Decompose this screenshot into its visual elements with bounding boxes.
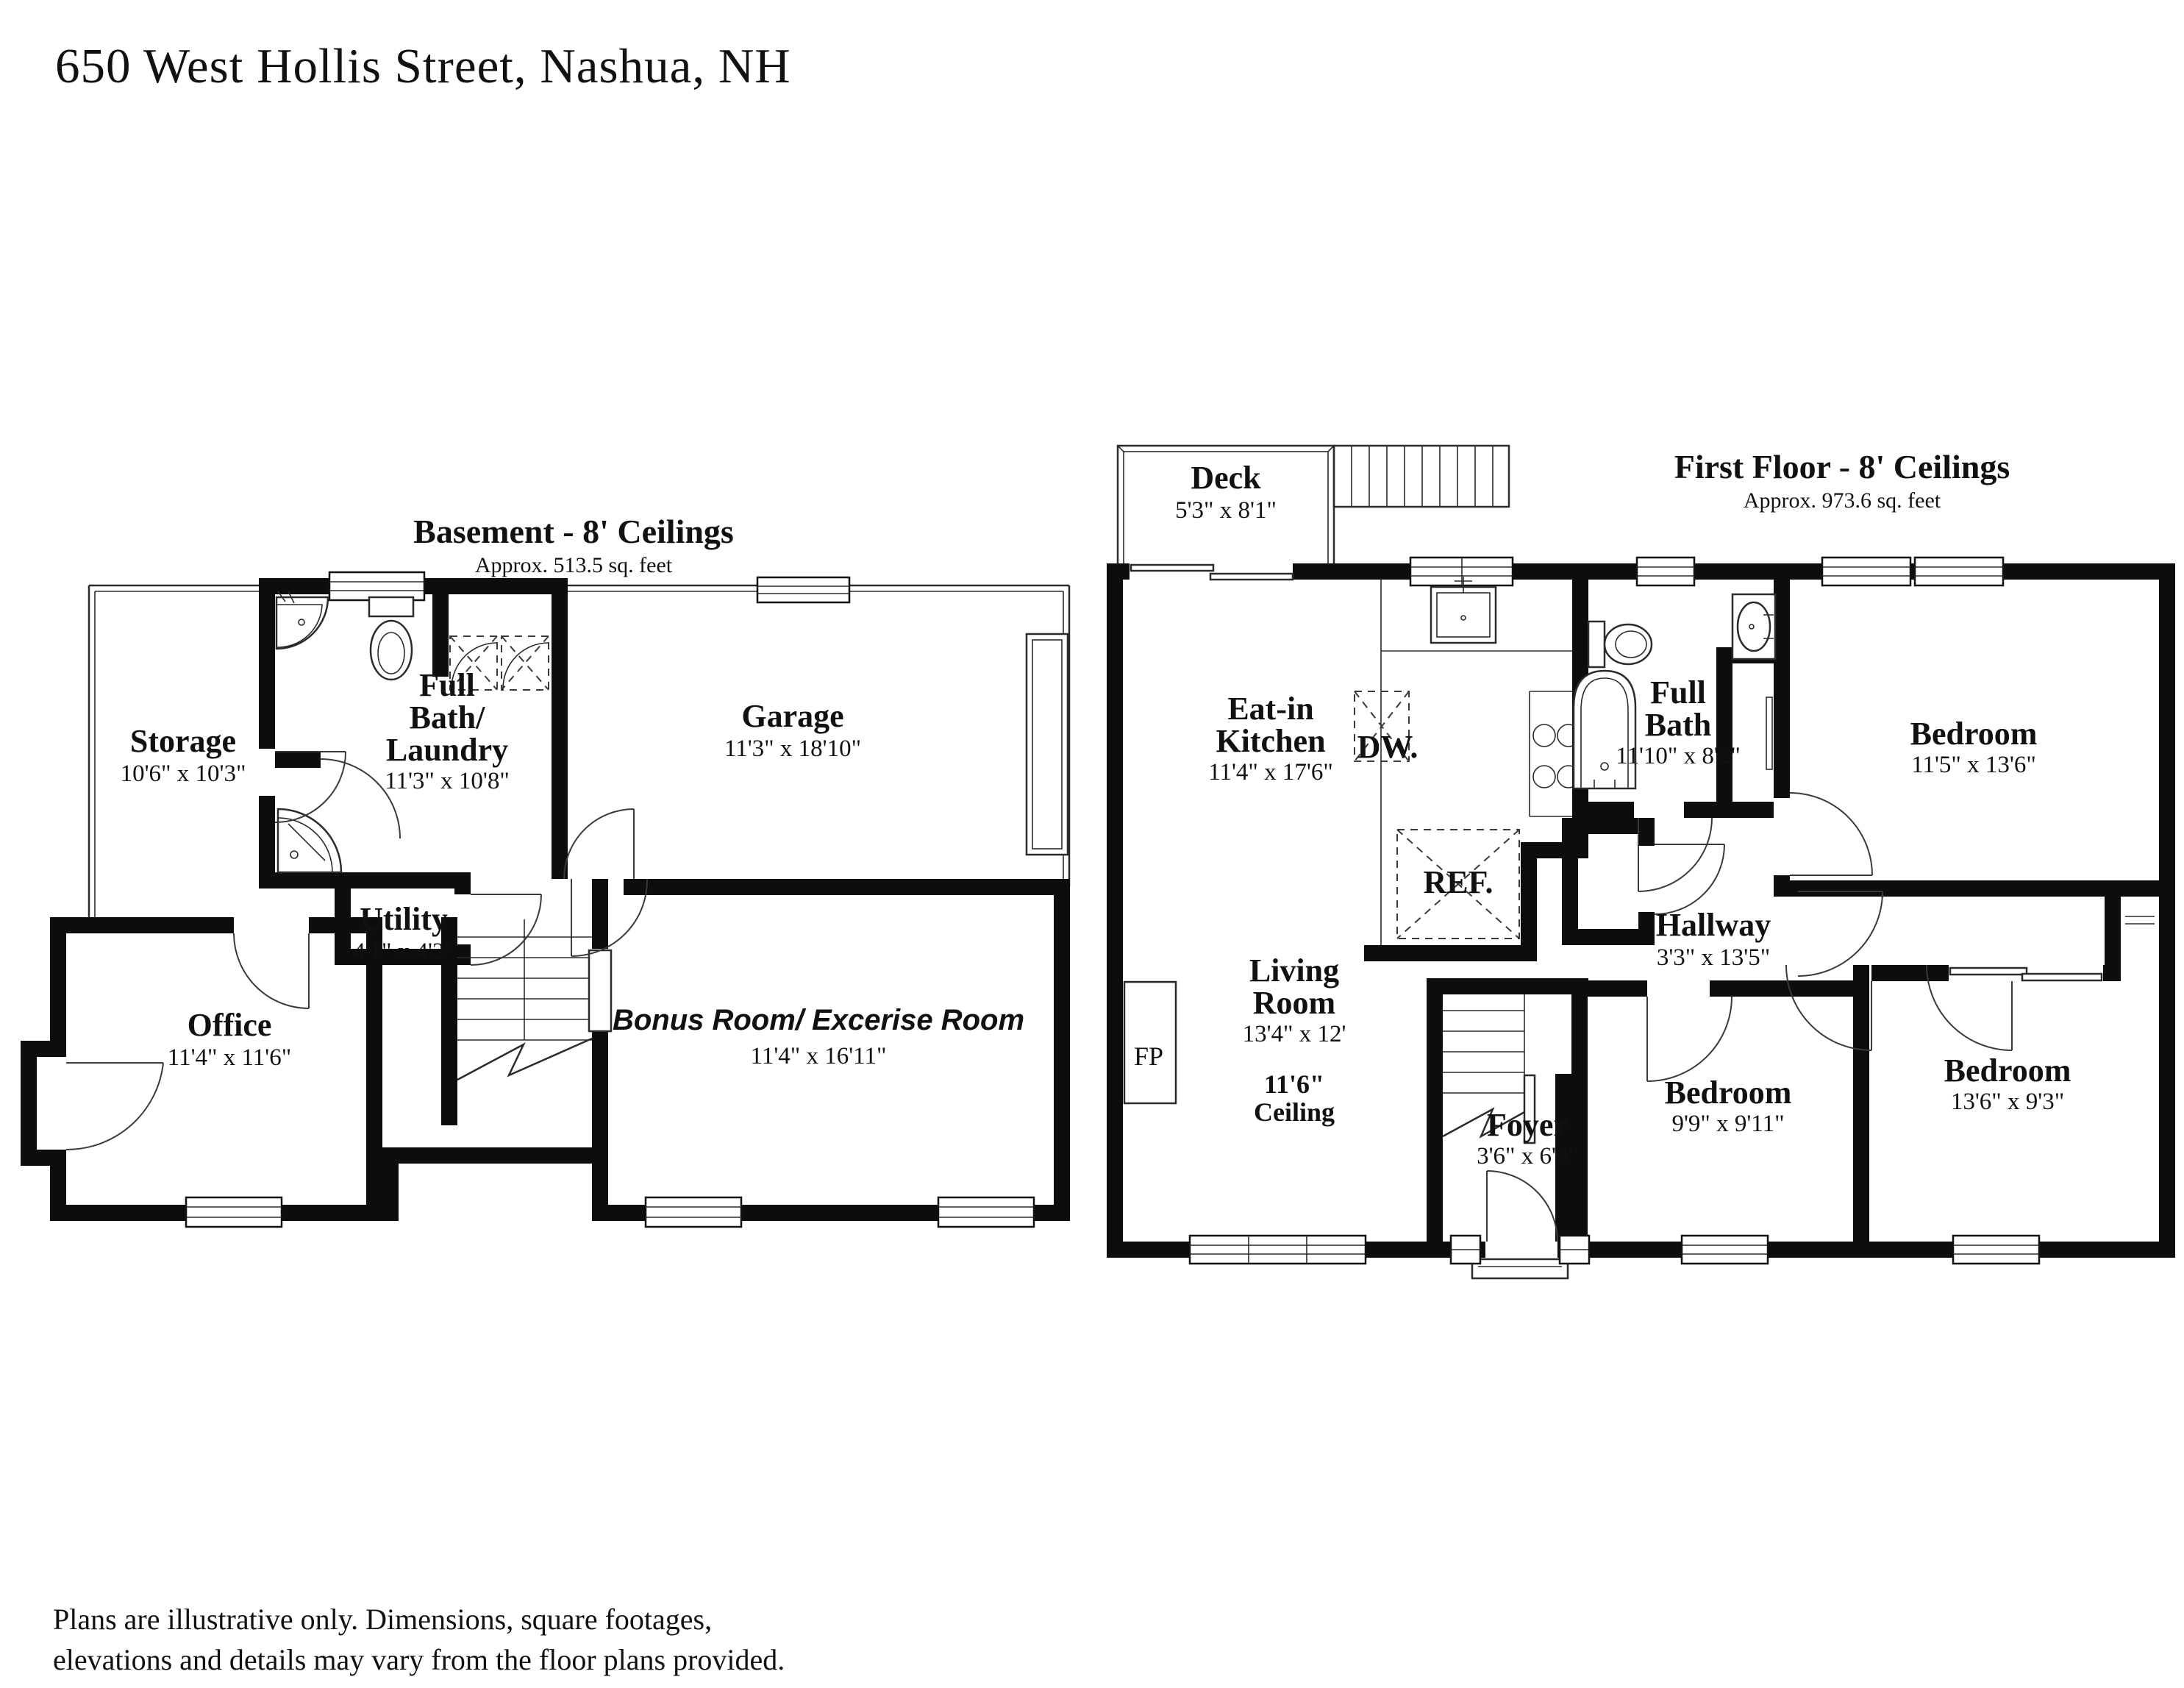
room-label-office: Office xyxy=(188,1007,272,1043)
basement-shower-fixture xyxy=(278,809,341,872)
bedroom3-window xyxy=(1953,1236,2039,1264)
bedroom3-closet-sliders xyxy=(1950,916,2155,980)
room-dims-hallway: 3'3" x 13'5" xyxy=(1657,944,1770,971)
bedroom2-window xyxy=(1682,1236,1768,1264)
garage-window xyxy=(757,577,849,602)
room-dims-office: 11'4" x 11'6" xyxy=(168,1044,291,1071)
ff-tub-fixture xyxy=(1574,671,1635,788)
first-floor-openings xyxy=(1130,563,1568,1278)
room-dims-bedroom1: 11'5" x 13'6" xyxy=(1911,752,2036,778)
room-label-utility: Utility xyxy=(360,901,448,937)
deck-stairs xyxy=(1334,446,1509,507)
ff-toilet-fixture xyxy=(1588,622,1652,667)
room-label-ffbath-1: Full xyxy=(1650,674,1706,711)
bedroom1-window-left xyxy=(1822,558,1910,585)
foyer-sidelight-right xyxy=(1560,1236,1589,1264)
basement-title: Basement - 8' Ceilings xyxy=(413,513,734,550)
room-label-garage: Garage xyxy=(741,698,843,734)
bonus-window-right xyxy=(938,1197,1034,1227)
bonus-door-leaf xyxy=(589,950,611,1031)
foyer-sidelight-left xyxy=(1451,1236,1480,1264)
room-dims-storage: 10'6" x 10'3" xyxy=(121,761,246,787)
dishwasher-label: DW. xyxy=(1357,729,1418,765)
room-label-storage: Storage xyxy=(130,723,236,759)
room-dims-garage: 11'3" x 18'10" xyxy=(724,736,861,762)
bath-window-ff xyxy=(1637,558,1694,585)
basement-walls xyxy=(21,578,1070,1221)
room-dims-bonus: 11'4" x 16'11" xyxy=(751,1043,887,1069)
room-dims-foyer: 3'6" x 6'9" xyxy=(1477,1143,1578,1169)
room-label-bedroom2: Bedroom xyxy=(1665,1075,1792,1111)
room-dims-bedroom3: 13'6" x 9'3" xyxy=(1951,1089,2064,1115)
room-dims-utility: 4'1" x 4'2" xyxy=(353,939,454,965)
room-label-bedroom3: Bedroom xyxy=(1944,1053,2071,1089)
basement-plan: Basement - 8' Ceilings Approx. 513.5 sq.… xyxy=(21,513,1070,1227)
room-label-kitchen-1: Eat-in xyxy=(1227,691,1313,727)
room-dims-bedroom2: 9'9" x 9'11" xyxy=(1671,1111,1784,1137)
basement-toilet-fixture xyxy=(369,597,413,680)
bath-window xyxy=(329,572,424,600)
room-dims-deck: 5'3" x 8'1" xyxy=(1175,497,1277,524)
floor-plan-page: 650 West Hollis Street, Nashua, NH Plans… xyxy=(0,0,2184,1688)
room-label-kitchen-2: Kitchen xyxy=(1216,723,1325,759)
room-label-hallway: Hallway xyxy=(1656,907,1771,943)
room-label-deck: Deck xyxy=(1191,460,1261,496)
floor-plan-drawing: 650 West Hollis Street, Nashua, NH Plans… xyxy=(0,0,2184,1688)
first-floor-windows xyxy=(1190,558,2039,1264)
office-window xyxy=(186,1197,282,1227)
kitchen-sink-fixture xyxy=(1431,577,1496,643)
room-label-fullbath-2: Bath/ xyxy=(410,699,485,736)
bedroom1-window-right xyxy=(1915,558,2003,585)
page-title: 650 West Hollis Street, Nashua, NH xyxy=(55,39,791,93)
stove-fixture xyxy=(1530,691,1580,816)
basement-subtitle: Approx. 513.5 sq. feet xyxy=(475,553,673,577)
room-label-foyer: Foyer xyxy=(1487,1107,1568,1143)
basement-bath-sink-fixture xyxy=(276,591,328,649)
basement-windows xyxy=(186,572,1034,1227)
room-dims-fullbath: 11'3" x 10'8" xyxy=(385,768,510,794)
disclaimer-line-2: elevations and details may vary from the… xyxy=(53,1643,785,1676)
disclaimer-line-1: Plans are illustrative only. Dimensions,… xyxy=(53,1603,712,1636)
living-ceiling-height: 11'6" xyxy=(1264,1069,1324,1099)
refrigerator-label: REF. xyxy=(1424,864,1494,900)
first-floor-plan: First Floor - 8' Ceilings Approx. 973.6 … xyxy=(1107,446,2175,1278)
fireplace-label: FP xyxy=(1134,1041,1163,1071)
room-label-bonus: Bonus Room/ Excerise Room xyxy=(613,1004,1024,1036)
living-ceiling-label: Ceiling xyxy=(1254,1097,1335,1127)
garage-door xyxy=(1027,634,1068,855)
room-label-bedroom1: Bedroom xyxy=(1910,716,2038,752)
first-floor-walls xyxy=(1107,563,2175,1258)
room-label-living-1: Living xyxy=(1249,952,1339,989)
room-label-ffbath-2: Bath xyxy=(1645,707,1711,743)
room-label-fullbath-1: Full xyxy=(419,667,475,703)
living-room-window xyxy=(1190,1236,1366,1264)
ff-vanity-sink-fixture xyxy=(1732,594,1775,659)
room-label-fullbath-3: Laundry xyxy=(386,732,508,768)
room-dims-ffbath: 11'10" x 8'2" xyxy=(1616,743,1741,769)
room-label-living-2: Room xyxy=(1253,985,1335,1021)
room-dims-living: 13'4" x 12' xyxy=(1243,1021,1346,1047)
room-dims-kitchen: 11'4" x 17'6" xyxy=(1208,759,1333,786)
first-floor-subtitle: Approx. 973.6 sq. feet xyxy=(1744,488,1941,513)
bonus-window-left xyxy=(646,1197,741,1227)
first-floor-title: First Floor - 8' Ceilings xyxy=(1674,448,2010,485)
bath-closet-door xyxy=(1766,697,1772,769)
